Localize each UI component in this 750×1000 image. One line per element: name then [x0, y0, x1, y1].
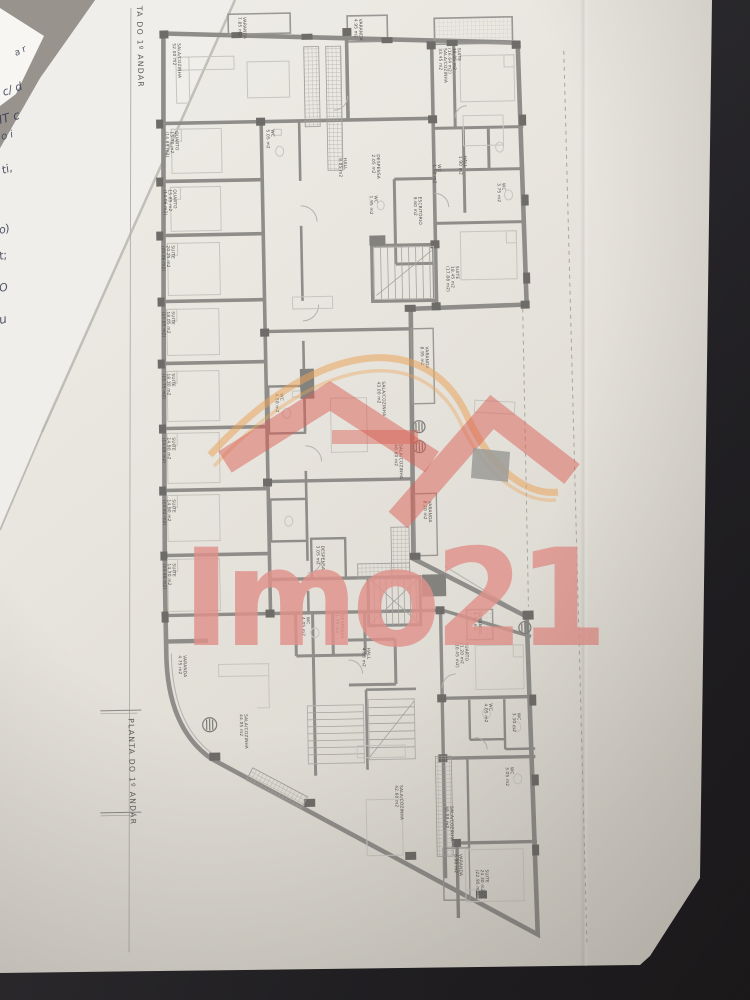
photo-vignette: [0, 0, 750, 1000]
photo-of-floor-plan: a rc/ dIT co iti,o)t;Ou TA DO 1º ANDAR P…: [0, 0, 750, 1000]
floor-plan-photo: a rc/ dIT co iti,o)t;Ou TA DO 1º ANDAR P…: [0, 0, 750, 1000]
